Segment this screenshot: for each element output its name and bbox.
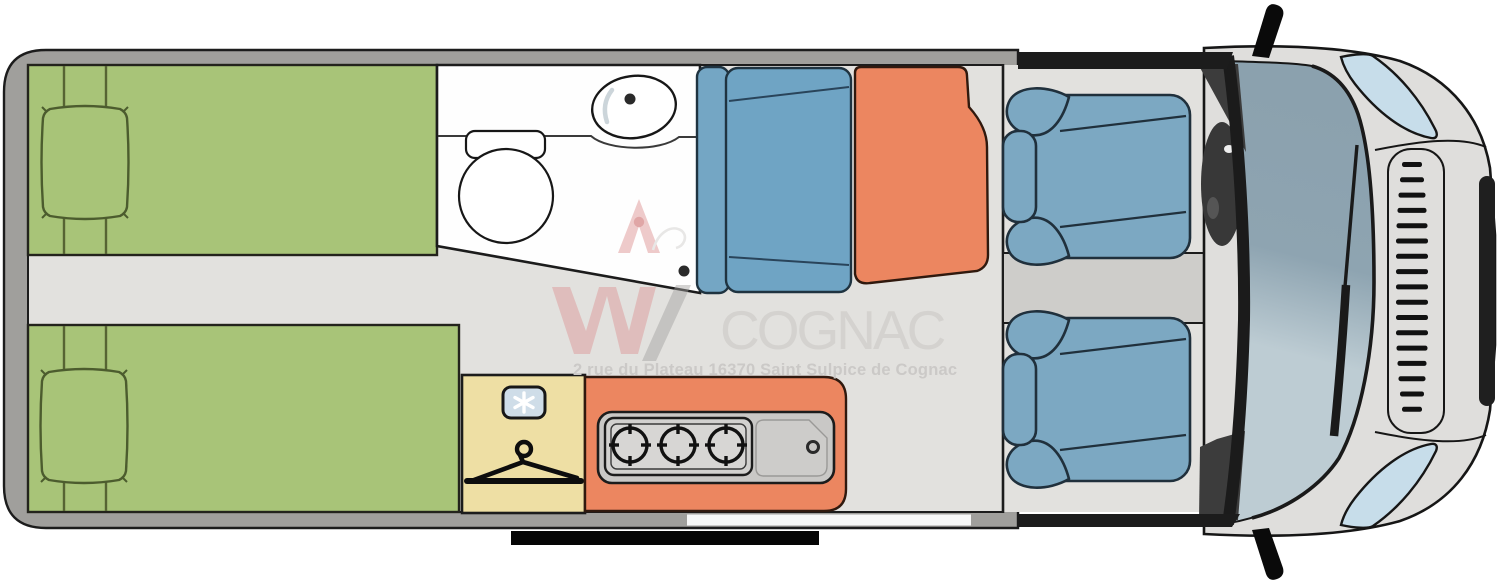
- svg-text:2 rue du Plateau 16370 Saint S: 2 rue du Plateau 16370 Saint Sulpice de …: [573, 361, 957, 379]
- svg-text:COGNAC: COGNAC: [720, 299, 945, 361]
